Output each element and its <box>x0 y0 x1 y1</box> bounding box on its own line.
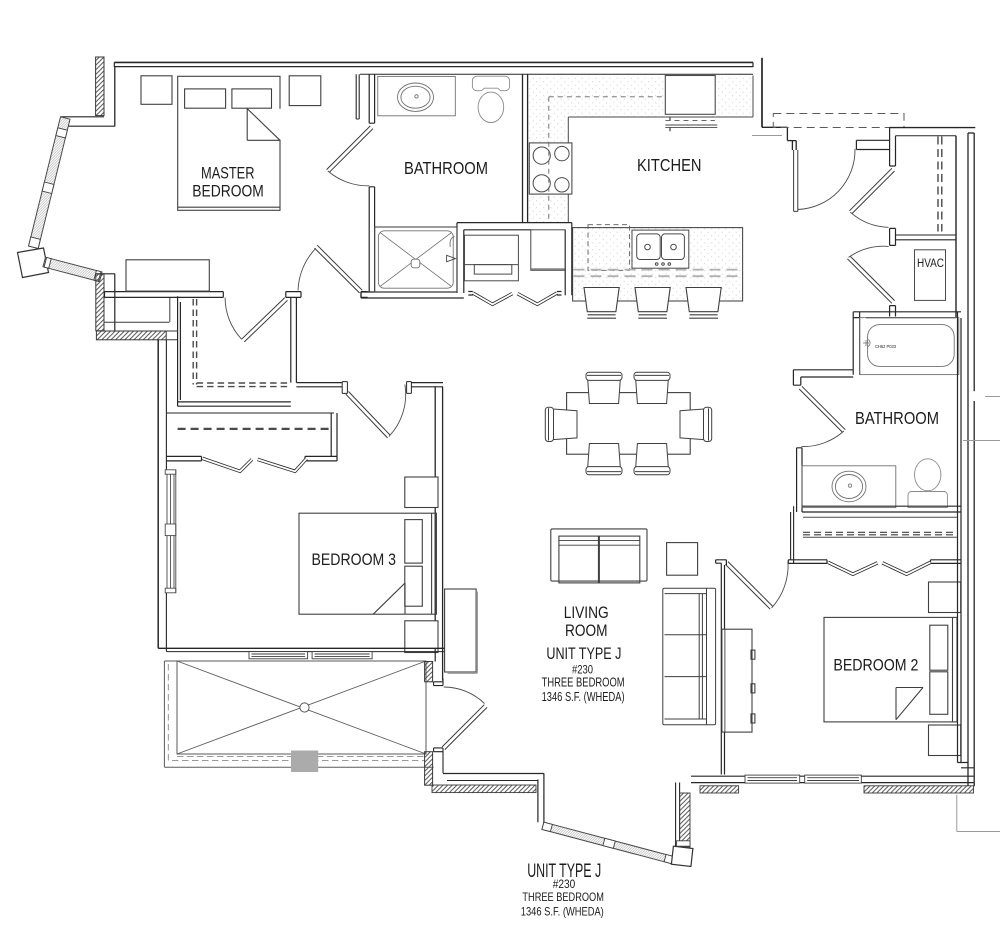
svg-text:CH62 P033: CH62 P033 <box>875 344 896 349</box>
svg-text:THREE BEDROOM: THREE BEDROOM <box>542 676 625 690</box>
svg-text:#230: #230 <box>572 663 593 677</box>
svg-text:1346 S.F. (WHEDA): 1346 S.F. (WHEDA) <box>542 690 625 704</box>
svg-text:LIVING: LIVING <box>564 603 609 622</box>
svg-text:BATHROOM: BATHROOM <box>404 158 488 178</box>
svg-text:BEDROOM 3: BEDROOM 3 <box>312 550 397 569</box>
svg-text:KITCHEN: KITCHEN <box>637 155 702 175</box>
svg-text:THREE BEDROOM: THREE BEDROOM <box>522 890 604 904</box>
svg-text:UNIT TYPE J: UNIT TYPE J <box>546 644 621 663</box>
svg-text:ROOM: ROOM <box>565 621 608 640</box>
svg-text:#230: #230 <box>553 877 576 891</box>
svg-text:BEDROOM 2: BEDROOM 2 <box>833 655 918 674</box>
svg-text:HVAC: HVAC <box>917 258 944 270</box>
svg-text:MASTER: MASTER <box>201 163 255 182</box>
svg-text:1346 S.F. (WHEDA): 1346 S.F. (WHEDA) <box>521 905 604 919</box>
svg-text:BATHROOM: BATHROOM <box>855 408 939 428</box>
svg-text:BEDROOM: BEDROOM <box>192 181 263 200</box>
